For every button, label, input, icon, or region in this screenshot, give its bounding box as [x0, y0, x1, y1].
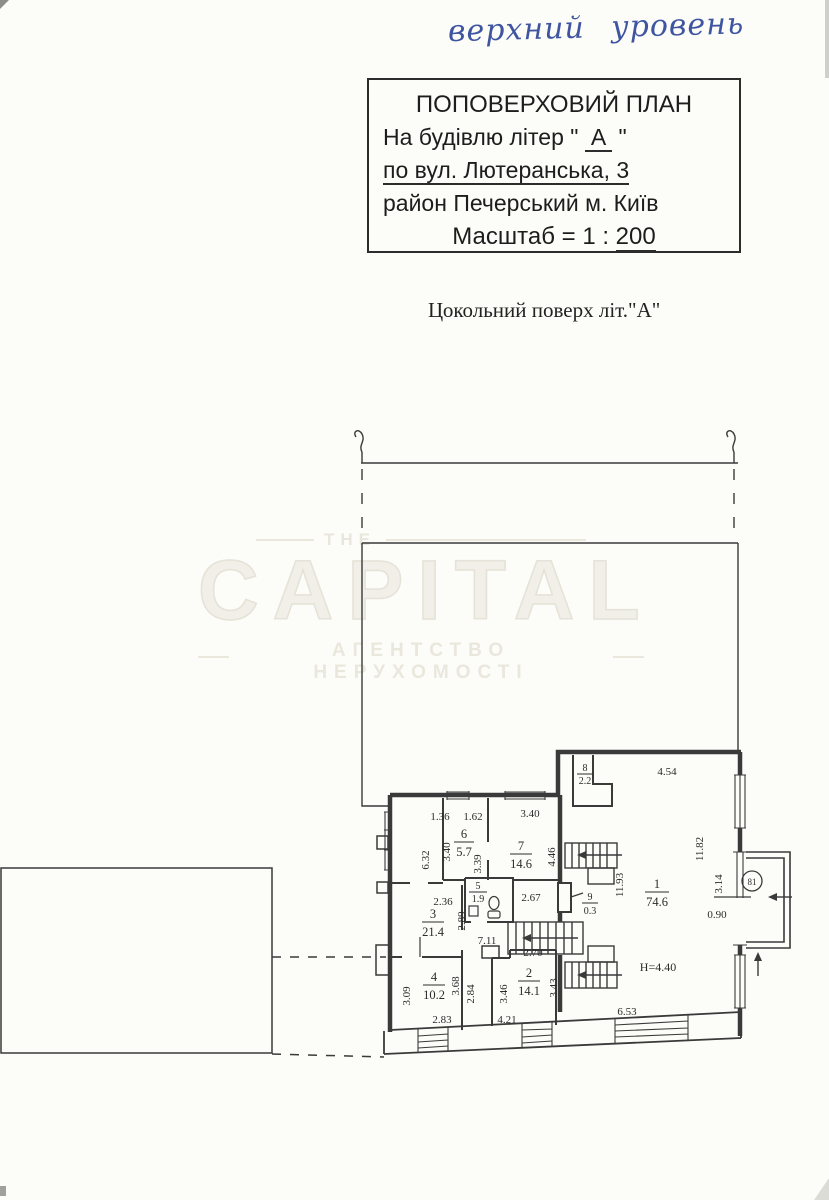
dim-label: 2.70 — [523, 947, 543, 959]
room-area: 14.1 — [518, 984, 540, 998]
room-label-8: 8 2.2 — [579, 763, 592, 787]
dim-label: 1.36 — [430, 811, 450, 823]
dim-label: 3.68 — [450, 976, 462, 996]
room-label-1: 1 74.6 — [646, 877, 668, 909]
dim-label: 3.14 — [713, 874, 725, 894]
entrance-badge-number: 81 — [748, 877, 757, 887]
dim-label: 6.32 — [420, 850, 432, 869]
room-number: 2 — [526, 966, 532, 980]
room-label-2: 2 14.1 — [518, 966, 540, 998]
room-number: 8 — [583, 763, 588, 774]
break-mark-icon — [727, 431, 735, 452]
room-area: 14.6 — [510, 857, 532, 871]
dim-label: 11.93 — [614, 872, 626, 897]
dim-label: 6.53 — [617, 1006, 637, 1018]
room-label-4: 4 10.2 — [423, 970, 445, 1002]
upper-level-outline — [355, 431, 738, 806]
height-note: Н=4.40 — [640, 960, 676, 974]
dim-label: 3.09 — [401, 986, 413, 1006]
dim-label: 2.89 — [456, 911, 468, 931]
dim-label: 3.40 — [520, 808, 540, 820]
dim-label: 7.11 — [478, 935, 497, 947]
dim-label: 11.82 — [694, 837, 706, 861]
room-number: 5 — [476, 881, 481, 892]
room-label-5: 5 1.9 — [472, 881, 485, 905]
room-number: 6 — [461, 827, 467, 841]
room-number: 9 — [588, 892, 593, 903]
dim-label: 4.21 — [497, 1014, 516, 1026]
floor-plan-drawing: 1.36 1.62 3.40 2.36 2.67 7.11 2.70 2.83 … — [0, 0, 829, 1200]
sink-icon — [469, 906, 478, 916]
room-number: 7 — [518, 839, 524, 853]
dim-label: 0.90 — [707, 909, 727, 921]
dim-label: 3.43 — [548, 978, 560, 998]
stairs-lower — [565, 946, 622, 988]
dim-label: 3.46 — [498, 984, 510, 1004]
dim-label: 2.36 — [433, 896, 453, 908]
room-area: 2.2 — [579, 776, 592, 787]
toilet-icon — [488, 897, 500, 919]
room-label-3: 3 21.4 — [422, 907, 445, 939]
scanned-floor-plan-page: верхний уровень ПОПОВЕРХОВИЙ ПЛАН На буд… — [0, 0, 829, 1200]
room-label-6: 6 5.7 — [456, 827, 472, 859]
entrance-arrows — [758, 897, 792, 976]
room-number: 3 — [430, 907, 436, 921]
room-area: 10.2 — [423, 988, 445, 1002]
dim-label: 3.39 — [472, 854, 484, 874]
room-number: 4 — [431, 970, 438, 984]
room-area: 74.6 — [646, 895, 668, 909]
room-area: 0.3 — [584, 906, 597, 917]
entry-arrow-icon — [768, 893, 777, 901]
room-area: 5.7 — [456, 845, 472, 859]
scan-artifact — [825, 0, 829, 78]
adjacent-building-outline — [1, 868, 386, 1057]
dim-label: 2.83 — [432, 1014, 452, 1026]
room-number: 1 — [654, 877, 660, 891]
entrance-porch — [746, 852, 790, 948]
dim-label: 1.62 — [463, 811, 482, 823]
dim-label: 3.40 — [441, 842, 453, 862]
dim-label: 4.54 — [657, 766, 677, 778]
dim-label: 4.46 — [546, 847, 558, 867]
room-label-7: 7 14.6 — [510, 839, 532, 871]
scan-artifact — [0, 1186, 6, 1196]
room-label-9: 9 0.3 — [584, 892, 597, 917]
break-mark-icon — [355, 431, 363, 452]
dim-label: 2.84 — [465, 984, 477, 1004]
dim-label: 2.67 — [521, 892, 541, 904]
room-area: 1.9 — [472, 894, 485, 905]
room-area: 21.4 — [422, 925, 445, 939]
entry-arrow-icon — [754, 952, 762, 961]
